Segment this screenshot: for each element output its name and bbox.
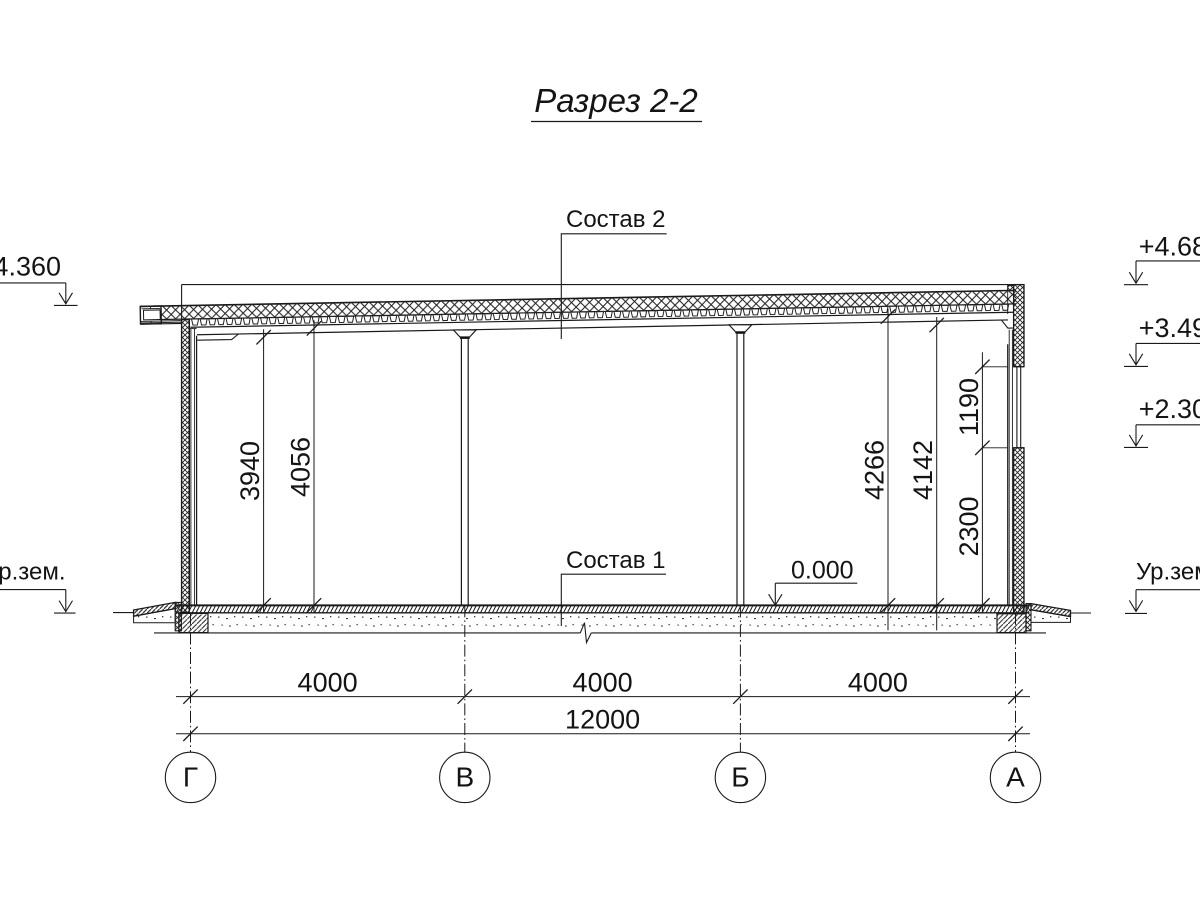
svg-text:Ур.зем.: Ур.зем.: [1136, 559, 1200, 586]
svg-text:А: А: [1006, 762, 1025, 793]
svg-text:Состав 2: Состав 2: [566, 206, 666, 233]
svg-text:Разрез 2-2: Разрез 2-2: [534, 82, 698, 119]
svg-text:+4.360: +4.360: [0, 252, 61, 282]
svg-text:1190: 1190: [954, 378, 984, 436]
svg-text:3940: 3940: [235, 441, 265, 501]
svg-text:4000: 4000: [573, 667, 633, 697]
svg-text:0.000: 0.000: [791, 557, 854, 585]
svg-text:+2.300: +2.300: [1139, 394, 1200, 424]
svg-text:4266: 4266: [860, 440, 890, 500]
svg-text:+4.680: +4.680: [1139, 232, 1200, 262]
svg-text:4000: 4000: [298, 667, 358, 697]
svg-text:Состав 1: Состав 1: [566, 547, 666, 574]
svg-text:Г: Г: [183, 762, 198, 793]
svg-text:Б: Б: [731, 762, 749, 793]
svg-text:4000: 4000: [848, 667, 908, 697]
svg-text:+3.490: +3.490: [1139, 313, 1200, 343]
svg-text:Ур.зем.: Ур.зем.: [0, 559, 66, 586]
svg-text:В: В: [455, 762, 474, 793]
svg-text:12000: 12000: [565, 705, 640, 735]
svg-text:4142: 4142: [908, 440, 938, 500]
svg-text:4056: 4056: [286, 437, 316, 497]
svg-text:2300: 2300: [954, 496, 984, 556]
